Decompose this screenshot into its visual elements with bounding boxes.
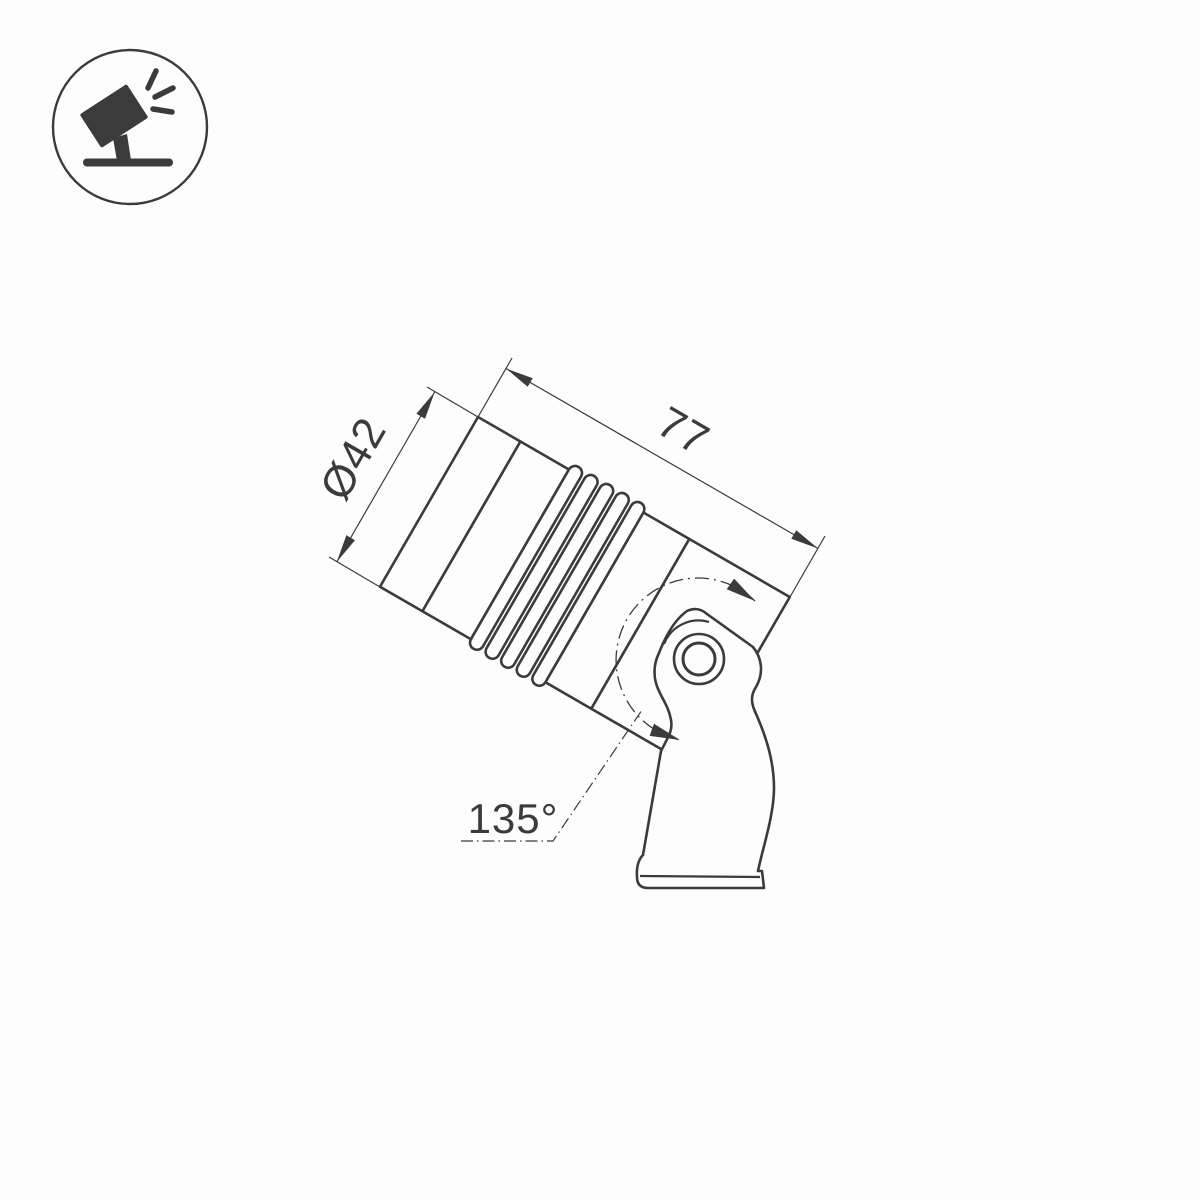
extension-line: [427, 387, 478, 417]
ground-line-icon: [83, 159, 173, 167]
technical-drawing-canvas: Ø42 77 135°: [0, 0, 1200, 1200]
angle-label: 135°: [468, 795, 559, 842]
arrowhead: [506, 369, 533, 387]
light-rays-icon: [148, 71, 173, 112]
extension-line: [478, 358, 512, 417]
arrowhead: [416, 392, 434, 419]
diameter-label: Ø42: [311, 409, 397, 508]
length-label: 77: [649, 397, 718, 465]
spotlight-stem-icon: [113, 134, 131, 161]
arrowhead: [337, 535, 355, 562]
dimension-angle: 135°: [461, 710, 642, 842]
base-plate-edge: [640, 876, 760, 877]
arrowhead: [791, 530, 818, 548]
tilted-spotlight-icon: [80, 71, 173, 167]
technical-drawing-page: Ø42 77 135°: [0, 0, 1200, 1200]
product-icon: [53, 50, 207, 204]
extension-line: [790, 536, 825, 597]
pivot-screw: [683, 643, 715, 675]
